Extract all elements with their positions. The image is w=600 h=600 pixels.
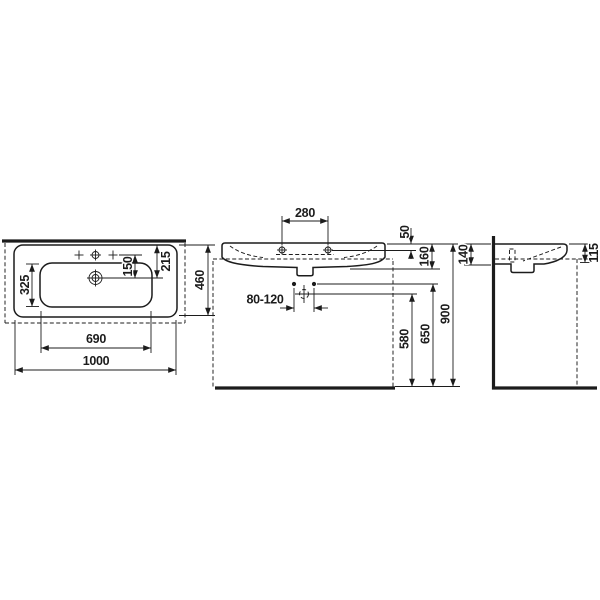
dim-height-at-wall: 140	[456, 244, 491, 265]
dim-height-at-front: 115	[569, 243, 600, 263]
front-view: 280 80-120 50	[213, 206, 460, 388]
dim-overall-width-label: 1000	[83, 354, 110, 368]
tap-hole-option-left	[75, 251, 84, 260]
dim-valve-spacing: 80-120	[246, 288, 328, 312]
drawing-page: 325 150 215 460 690	[0, 0, 600, 600]
dim-rim-to-drain-label: 215	[159, 251, 173, 271]
fixing-hole-left	[277, 246, 287, 255]
dim-overall-width: 1000	[15, 320, 176, 375]
fixing-hole-right	[323, 246, 333, 255]
dim-floor-to-valves: 650	[418, 284, 433, 387]
valve-point-left	[292, 282, 296, 286]
plan-view: 325 150 215 460 690	[2, 241, 215, 375]
dim-rim-to-fixing-label: 50	[398, 225, 412, 239]
valve-point-right	[312, 282, 316, 286]
dim-floor-to-trap: 580	[397, 294, 412, 387]
dim-height-at-front-label: 115	[587, 243, 600, 263]
dim-floor-to-valves-label: 650	[418, 324, 432, 344]
dim-rim-to-outlet-label: 160	[417, 246, 431, 266]
dim-overall-depth: 460	[179, 245, 215, 316]
dim-bowl-depth: 325	[18, 264, 39, 307]
dim-floor-to-rim: 900	[438, 244, 453, 387]
side-view: 140 115	[456, 236, 600, 390]
tap-hole-option-right	[109, 251, 118, 260]
dim-rim-to-fixing: 50	[398, 225, 412, 259]
dim-rim-to-outlet: 160	[417, 244, 432, 269]
dim-bowl-width-label: 690	[86, 332, 106, 346]
dim-floor-to-trap-label: 580	[397, 329, 411, 349]
dim-tap-hole-spacing-label: 280	[295, 206, 315, 220]
waste-pipe-centre	[295, 285, 313, 303]
hidden-bowl-right	[344, 246, 377, 258]
dim-tap-hole-spacing: 280	[282, 206, 328, 245]
dim-overall-depth-label: 460	[193, 270, 207, 290]
dim-floor-to-rim-label: 900	[438, 304, 452, 324]
dim-tap-to-drain-label: 150	[121, 256, 135, 276]
hidden-fixing-bolt-side	[510, 249, 516, 262]
dim-rim-to-drain: 215	[157, 246, 173, 279]
hidden-bowl-left	[230, 246, 263, 258]
dim-valve-spacing-label: 80-120	[246, 293, 283, 307]
technical-drawing-canvas: 325 150 215 460 690	[0, 0, 600, 600]
dim-height-at-wall-label: 140	[456, 244, 470, 264]
tap-hole	[90, 250, 101, 261]
dim-bowl-depth-label: 325	[18, 275, 32, 295]
drain-plan	[87, 270, 104, 287]
